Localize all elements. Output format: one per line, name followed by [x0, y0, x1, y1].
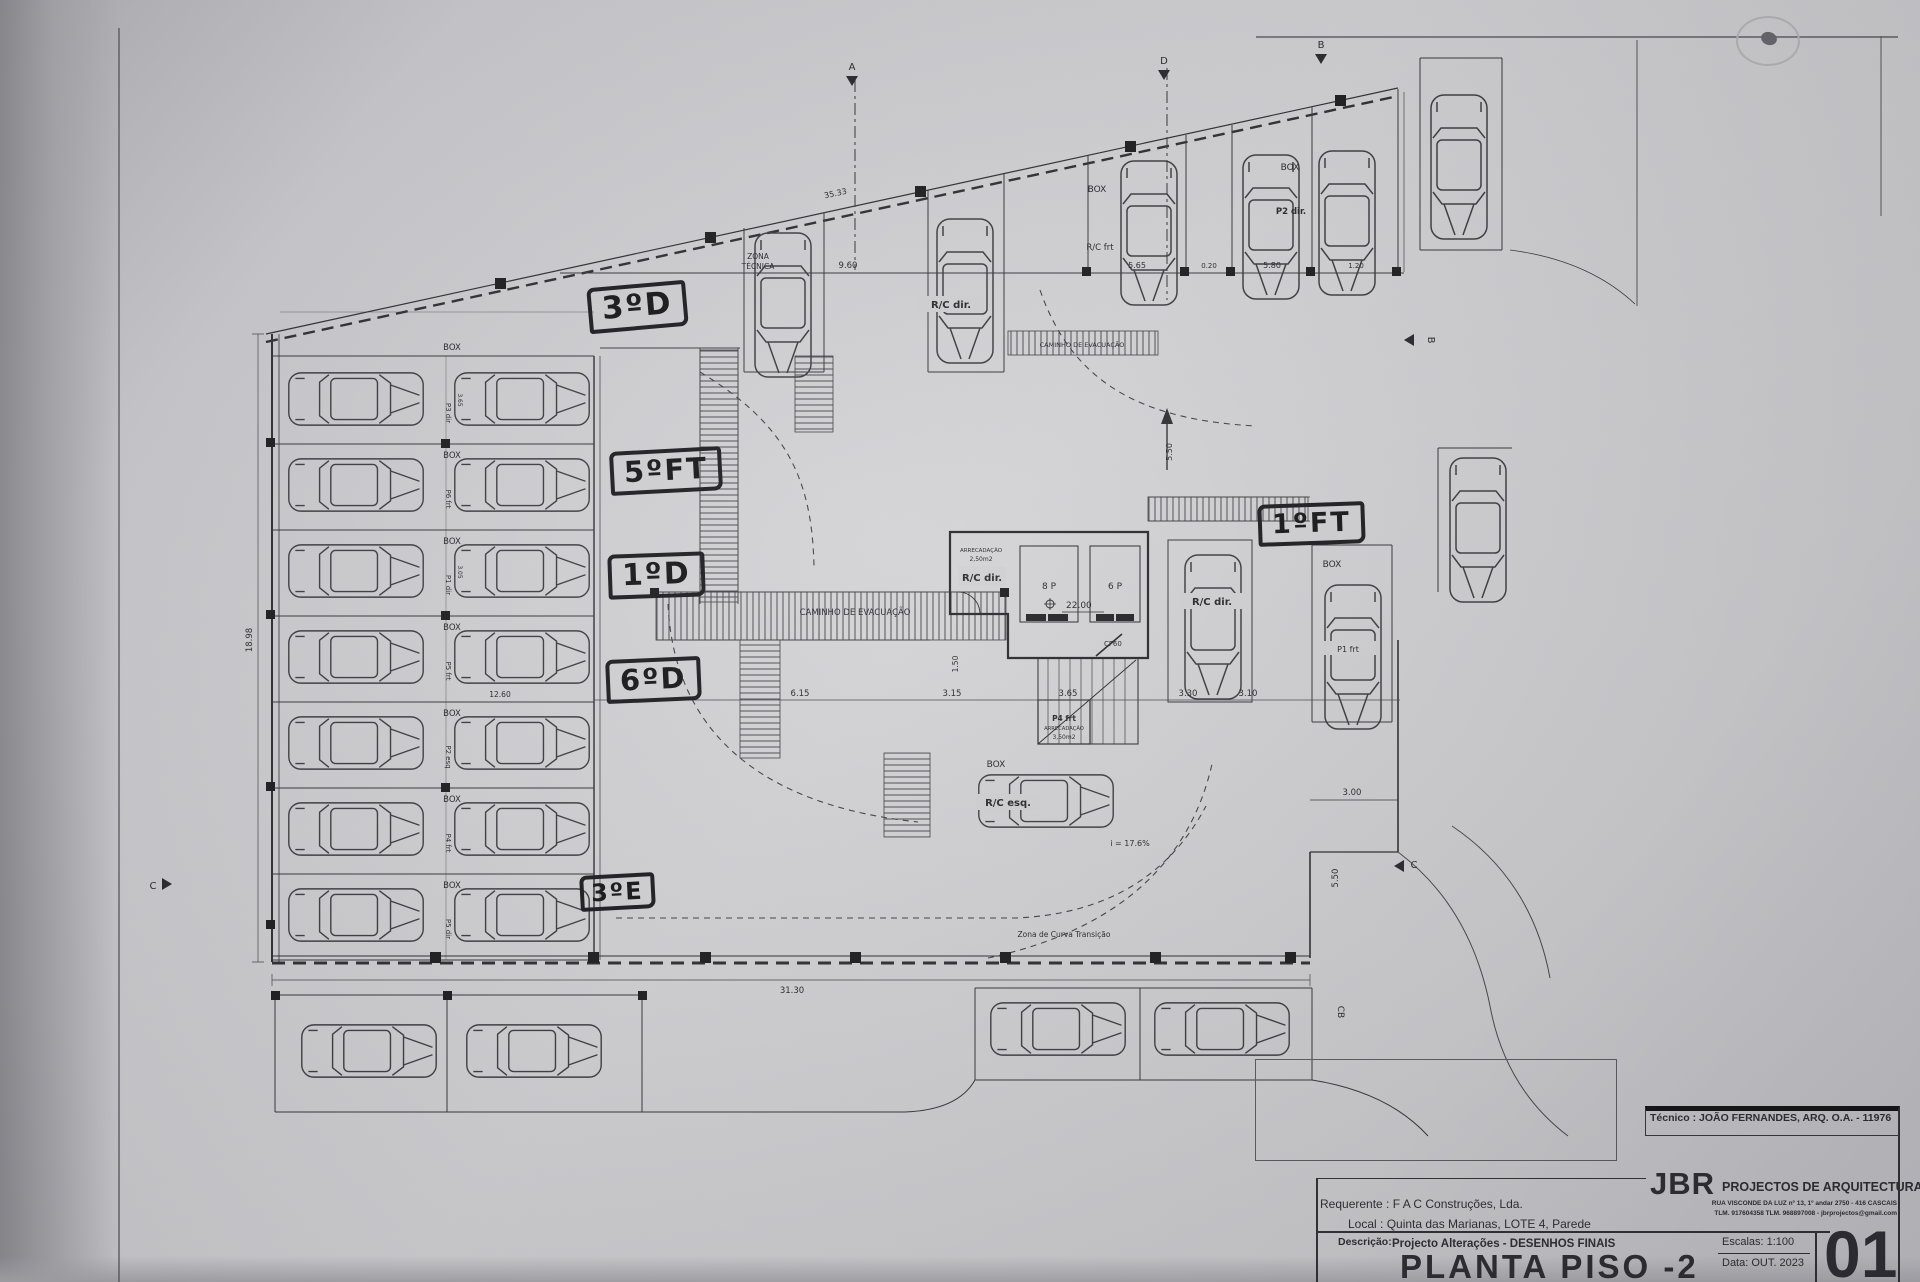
stall-label: P5 dir: [444, 919, 452, 939]
car: [937, 219, 993, 363]
elevator-label: 8 P: [1042, 582, 1057, 592]
stall-label: P6 frt: [444, 490, 452, 509]
dimension-label: 3.05: [456, 565, 463, 579]
zona-tecnica-label: ZONA: [747, 252, 770, 261]
zona-tecnica-label: TÉCNICA: [741, 262, 776, 271]
stall-label: P5 frt: [444, 662, 452, 681]
box-label: BOX: [987, 760, 1006, 770]
escalas-text: Escalas: 1:100: [1722, 1236, 1794, 1248]
car: [455, 459, 589, 511]
car: [289, 545, 423, 597]
data-text: Data: OUT. 2023: [1722, 1257, 1804, 1269]
arrecadacao-label: ARRECADAÇÃO: [960, 547, 1003, 554]
dimension-label: 0.20: [1201, 262, 1217, 270]
car: [455, 889, 589, 941]
box-label: BOX: [443, 623, 461, 633]
section-letter: A: [849, 62, 856, 73]
caminho-evacuacao-label: CAMINHO DE EVACUAÇÃO: [800, 607, 911, 618]
box-label: BOX: [443, 881, 461, 891]
stall-label: P1 dir: [444, 575, 452, 595]
car: [289, 803, 423, 855]
handwritten-unit-1d: 1ºD: [607, 551, 705, 599]
car: [289, 373, 423, 425]
rc-frt-label: R/C frt: [1086, 243, 1114, 253]
car: [455, 803, 589, 855]
car: [1243, 155, 1299, 299]
handwritten-unit-5ft: 5ºFT: [609, 446, 723, 496]
dimension-label: 5.80: [1263, 261, 1281, 270]
car: [289, 889, 423, 941]
car: [1185, 555, 1241, 699]
ramp-slope-label: i = 17.6%: [1110, 839, 1150, 848]
structural-columns: [266, 95, 1401, 1000]
firm-tagline: PROJECTOS DE ARQUITECTURA: [1722, 1180, 1920, 1194]
section-letter: CB: [1335, 1006, 1345, 1018]
car: [1431, 95, 1487, 239]
box-label: BOX: [443, 795, 461, 805]
section-letter: C: [150, 881, 157, 892]
stall-label: P2 esq: [444, 745, 452, 768]
dimension-label: 3.00: [1343, 788, 1362, 798]
box-label: BOX: [1088, 185, 1107, 195]
caminho-evacuacao-label: CAMINHO DE EVACUAÇÃO: [1040, 340, 1125, 349]
dimension-label: 3.65: [456, 393, 463, 407]
dimension-label: 3.15: [943, 689, 962, 699]
stall-label: P3 dir: [444, 403, 452, 423]
car: [455, 545, 589, 597]
box-label: BOX: [443, 537, 461, 547]
box-label: BOX: [443, 451, 461, 461]
rc-dir-label: R/C dir.: [931, 300, 971, 311]
box-label: BOX: [1281, 163, 1300, 173]
arrecadacao-area: 3,50m2: [1052, 734, 1075, 741]
section-letter: C: [1411, 860, 1418, 871]
dimension-label: 18.98: [245, 628, 255, 652]
curve-note-label: Zona de Curva Transição: [1018, 930, 1111, 939]
car: [1450, 458, 1506, 602]
titleblock-rule: [1815, 1231, 1817, 1282]
elevator-label: 6 P: [1108, 582, 1123, 592]
box-label: BOX: [443, 709, 461, 719]
descricao-label: Descrição:: [1338, 1236, 1392, 1248]
ramp-hatching: [600, 331, 1308, 837]
door-cf60-label: CF60: [1104, 640, 1122, 648]
car: [1325, 585, 1381, 729]
dimension-label: 35.33: [823, 187, 847, 201]
p1-frt-label: P1 frt: [1337, 645, 1359, 654]
section-letter: B: [1318, 40, 1325, 51]
section-letter: B: [1425, 337, 1436, 344]
car: [302, 1025, 436, 1077]
car: [455, 717, 589, 769]
handwritten-unit-3e: 3ºE: [579, 872, 655, 912]
site-boundary: [266, 88, 1398, 963]
rc-dir-label: R/C dir.: [962, 573, 1002, 584]
sheet-number: 01: [1824, 1216, 1897, 1282]
car: [455, 631, 589, 683]
level-value: 22.00: [1066, 601, 1092, 611]
rc-esq-label: R/C esq.: [985, 798, 1031, 809]
titleblock-rule: [1316, 1178, 1646, 1179]
handwritten-unit-1ft: 1ºFT: [1257, 501, 1365, 547]
dimension-label: 6.15: [791, 689, 810, 699]
rc-dir-label: R/C dir.: [1192, 597, 1232, 608]
car: [289, 717, 423, 769]
floor-plan-linework: ZONA TÉCNICA CAMINHO DE EVACUAÇÃO CAMINH…: [0, 0, 1920, 1282]
dimension-label: 1.50: [951, 655, 960, 672]
dimension-label: 3.65: [1059, 689, 1078, 699]
parked-cars: [289, 95, 1506, 1077]
dimension-label: 3.10: [1239, 689, 1258, 699]
firm-address: RUA VISCONDE DA LUZ nº 13, 1º andar 2750…: [1655, 1200, 1897, 1207]
tecnico-text: Técnico : JOÃO FERNANDES, ARQ. O.A. - 11…: [1650, 1112, 1891, 1124]
stall-label: P4 frt: [444, 834, 452, 853]
box-label: BOX: [443, 343, 461, 353]
dimension-label: 3.30: [1179, 689, 1198, 699]
car: [289, 631, 423, 683]
dimension-label: 5.50: [1331, 869, 1341, 888]
dimension-label: 31.30: [780, 986, 804, 996]
car: [467, 1025, 601, 1077]
titleblock-rule: [1718, 1253, 1810, 1254]
car: [1155, 1003, 1289, 1055]
dimension-lines: [252, 92, 1404, 986]
car: [1121, 161, 1177, 305]
car: [289, 459, 423, 511]
car: [455, 373, 589, 425]
dimension-label: 9.60: [839, 261, 858, 271]
handwritten-unit-3d: 3ºD: [586, 280, 688, 334]
dimension-label: 1.20: [1348, 262, 1364, 270]
titleblock-rule: [1316, 1178, 1318, 1282]
local-text: Local : Quinta das Marianas, LOTE 4, Par…: [1348, 1217, 1591, 1231]
p2-dir-label: P2 dir.: [1276, 207, 1306, 217]
handwritten-unit-6d: 6ºD: [605, 656, 701, 704]
box-label: BOX: [1323, 560, 1342, 570]
photo-of-architectural-plan: ZONA TÉCNICA CAMINHO DE EVACUAÇÃO CAMINH…: [0, 0, 1920, 1282]
dimension-label: 5.65: [1128, 261, 1146, 270]
requerente-text: Requerente : F A C Construções, Lda.: [1320, 1197, 1523, 1211]
arrecadacao-label: ARRECADAÇÃO: [1044, 725, 1084, 732]
section-letter: D: [1160, 56, 1168, 67]
revision-box: [1255, 1059, 1617, 1161]
car: [991, 1003, 1125, 1055]
titleblock-rule: [1316, 1231, 1830, 1233]
firm-logo: JBR: [1650, 1166, 1715, 1202]
arrecadacao-area: 2,50m2: [969, 556, 992, 563]
p4-frt-label: P4 frt: [1052, 714, 1076, 723]
dimension-label: 5.50: [1165, 443, 1174, 461]
drawing-title: PLANTA PISO -2: [1400, 1248, 1699, 1282]
dimension-label: 12.60: [489, 690, 511, 699]
